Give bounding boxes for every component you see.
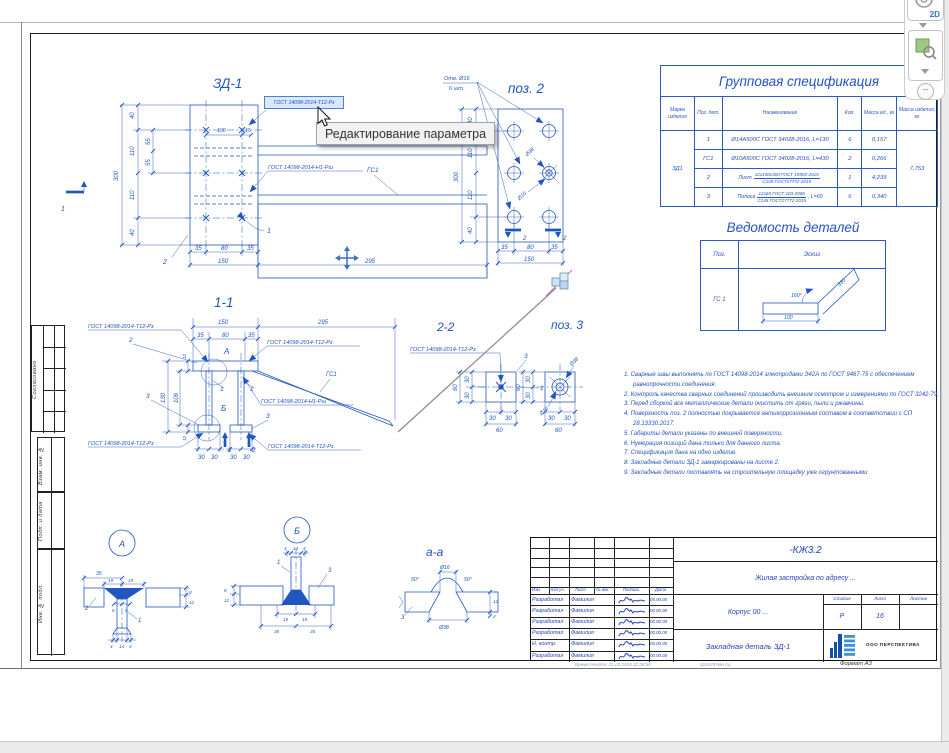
- parts-list-pos: ГС 1: [701, 269, 739, 331]
- spec-mark: ЗД1: [661, 131, 695, 207]
- company-logo-icon: [829, 633, 863, 659]
- spec-header: Кол.: [838, 97, 862, 131]
- signature: [617, 596, 647, 605]
- spec-name: Полоса12х60 ГОСТ 103-2006С245 ГОСТ27772-…: [722, 188, 838, 207]
- signature: [617, 640, 647, 649]
- spec-pos: 2: [694, 169, 722, 188]
- spec-total-mass: 7,753: [897, 131, 938, 207]
- tb-sheet-label: Лист: [861, 597, 899, 602]
- tb-project: Жилая застройка по адресу ...: [673, 575, 938, 582]
- tb-date: 00.00.00: [650, 654, 667, 658]
- spec-pos: 1: [694, 131, 722, 150]
- tb-name: Фамилия: [571, 609, 594, 614]
- general-notes: 1. Сварные швы выполнять по ГОСТ 14098-2…: [624, 371, 940, 479]
- tb-date: 00.00.00: [650, 620, 667, 624]
- side-stamp-inv: Инв. № подл.: [37, 549, 65, 655]
- group-specification-table: Групповая спецификация Марка изделия Поз…: [660, 65, 938, 207]
- note-line: 2. Контроль качества сварных соединений …: [624, 391, 940, 401]
- spec-pos: ГС1: [694, 150, 722, 169]
- note-line: 4. Поверхность поз. 2 полностью покрывае…: [624, 410, 940, 430]
- side-stamp-label: Инв. № подл.: [38, 550, 51, 656]
- spec-qty: 2: [838, 150, 862, 169]
- sheet-left-edge: [21, 22, 22, 669]
- side-stamp-podp: Подп. и дата: [37, 492, 65, 549]
- print-info: Время печати: 21.01.2016 12:28:58: [575, 662, 651, 667]
- note-line: 9. Закладные детали поставлять на строит…: [624, 469, 940, 479]
- note-line: 5. Габариты детали указаны по внешней по…: [624, 430, 940, 440]
- format-label: Формат А3: [840, 661, 872, 667]
- side-stamp-agreed: Согласовано: [31, 325, 65, 432]
- tb-col: Дата: [655, 588, 666, 592]
- spec-mass: 4,239: [862, 169, 897, 188]
- signature: [617, 607, 647, 616]
- spec-pos: 3: [694, 188, 722, 207]
- note-line: 6. Нумерация позиций дана только для дан…: [624, 440, 940, 450]
- tb-name: Фамилия: [571, 620, 594, 625]
- side-stamp-label: Согласовано: [32, 326, 43, 433]
- side-stamp-label: Взам. инв. №: [38, 438, 51, 493]
- tb-col: Подпись: [623, 588, 640, 592]
- spec-qty: 1: [838, 169, 862, 188]
- chevron-down-icon[interactable]: [919, 23, 927, 28]
- note-line: 1. Сварные швы выполнять по ГОСТ 14098-2…: [624, 371, 940, 391]
- parts-list-sketch-cell: [738, 269, 885, 331]
- signature: [617, 629, 647, 638]
- tb-role: Разработал: [532, 598, 563, 603]
- spec-header: Масса ед., кг: [862, 97, 897, 131]
- tb-doc-code: -КЖ3.2: [673, 546, 938, 556]
- spec-mass: 0,157: [862, 131, 897, 150]
- spec-qty: 6: [838, 131, 862, 150]
- tb-name: Фамилия: [571, 642, 594, 647]
- parts-list-table: Поз. Эскиз ГС 1: [700, 240, 886, 331]
- tb-sheet-name: Закладная деталь ЗД-1: [673, 643, 823, 651]
- tb-role: Разработал: [532, 654, 563, 659]
- tb-col: Лист: [575, 588, 586, 592]
- signature: [617, 652, 647, 661]
- spec-name: Ø10А500С ГОСТ 34028-2016, L=430: [722, 150, 838, 169]
- side-stamp-label: Подп. и дата: [38, 493, 51, 550]
- tb-sheets-label: Листов: [899, 597, 938, 602]
- spec-title: Групповая спецификация: [661, 66, 938, 97]
- signature: [617, 618, 647, 627]
- parts-list-header: Эскиз: [738, 241, 885, 269]
- view-toolbar: 2D −: [904, 0, 945, 100]
- application-canvas: Согласовано Взам. инв. № Подп. и дата Ин…: [0, 0, 949, 753]
- spec-header: Наименование: [722, 97, 838, 131]
- side-stamp-vzam: Взам. инв. №: [37, 437, 65, 492]
- company-name: ООО ПЕРСПЕКТИВА: [866, 643, 920, 648]
- window-right-margin: [941, 0, 949, 753]
- minus-icon: −: [922, 84, 928, 96]
- note-line: 3. Перед сборкой все металлические детал…: [624, 400, 940, 410]
- tb-role: Разработал: [532, 631, 563, 636]
- tb-name: Фамилия: [571, 598, 594, 603]
- tb-role: Разработал: [532, 609, 563, 614]
- zoom-area-icon[interactable]: [915, 37, 937, 61]
- tb-date: 00.00.00: [650, 598, 667, 602]
- paper-size: 420х297мм (х): [700, 662, 731, 667]
- spec-mass: 0,266: [862, 150, 897, 169]
- edit-parameter-tooltip: Редактирование параметра: [316, 122, 495, 145]
- view-2d-button[interactable]: 2D: [907, 0, 944, 21]
- parts-list-header: Поз.: [701, 241, 739, 269]
- tb-sheet-value: 16: [861, 613, 899, 620]
- tb-date: 00.00.00: [650, 609, 667, 613]
- spec-qty: 6: [838, 188, 862, 207]
- tb-col: № док.: [596, 588, 609, 592]
- spec-header: Поз. дет.: [694, 97, 722, 131]
- tb-object: Корпус 00 ...: [673, 609, 823, 616]
- tb-name: Фамилия: [571, 631, 594, 636]
- mouse-cursor-icon: [316, 106, 332, 128]
- tb-stage-value: Р: [823, 613, 861, 620]
- zoom-out-button[interactable]: −: [917, 83, 934, 100]
- tb-date: 00.00.00: [650, 642, 667, 646]
- spec-header: Масса изделия, кг: [897, 97, 938, 131]
- tb-stage-label: Стадия: [823, 597, 861, 602]
- window-bottom-margin: [0, 741, 949, 753]
- tb-col: Изм.: [532, 588, 541, 592]
- zoom-tools-panel: [908, 30, 943, 81]
- tb-role: Разработал: [532, 620, 563, 625]
- note-line: 8. Закладные детали ЗД-1 замаркированы н…: [624, 459, 940, 469]
- tb-role: Н. контр.: [532, 642, 556, 647]
- tb-col: Кол.уч.: [551, 588, 565, 592]
- tb-date: 00.00.00: [650, 631, 667, 635]
- note-line: 7. Спецификация дана на одно изделие.: [624, 449, 940, 459]
- selected-parameter[interactable]: ГОСТ 14098-2014-Т12-Рз: [264, 96, 344, 109]
- spec-name: Лист12х150х300 ГОСТ 19903-2015С245 ГОСТ2…: [722, 169, 838, 188]
- spec-mass: 0,340: [862, 188, 897, 207]
- tb-name: Фамилия: [571, 654, 594, 659]
- title-block: Изм. Кол.уч. Лист № док. Подпись Дата Ра…: [530, 537, 937, 661]
- chevron-down-icon[interactable]: [921, 69, 929, 74]
- spec-name: Ø14А500С ГОСТ 34028-2016, L=130: [722, 131, 838, 150]
- parts-list-title: Ведомость деталей: [700, 220, 886, 235]
- spec-header: Марка изделия: [661, 97, 695, 131]
